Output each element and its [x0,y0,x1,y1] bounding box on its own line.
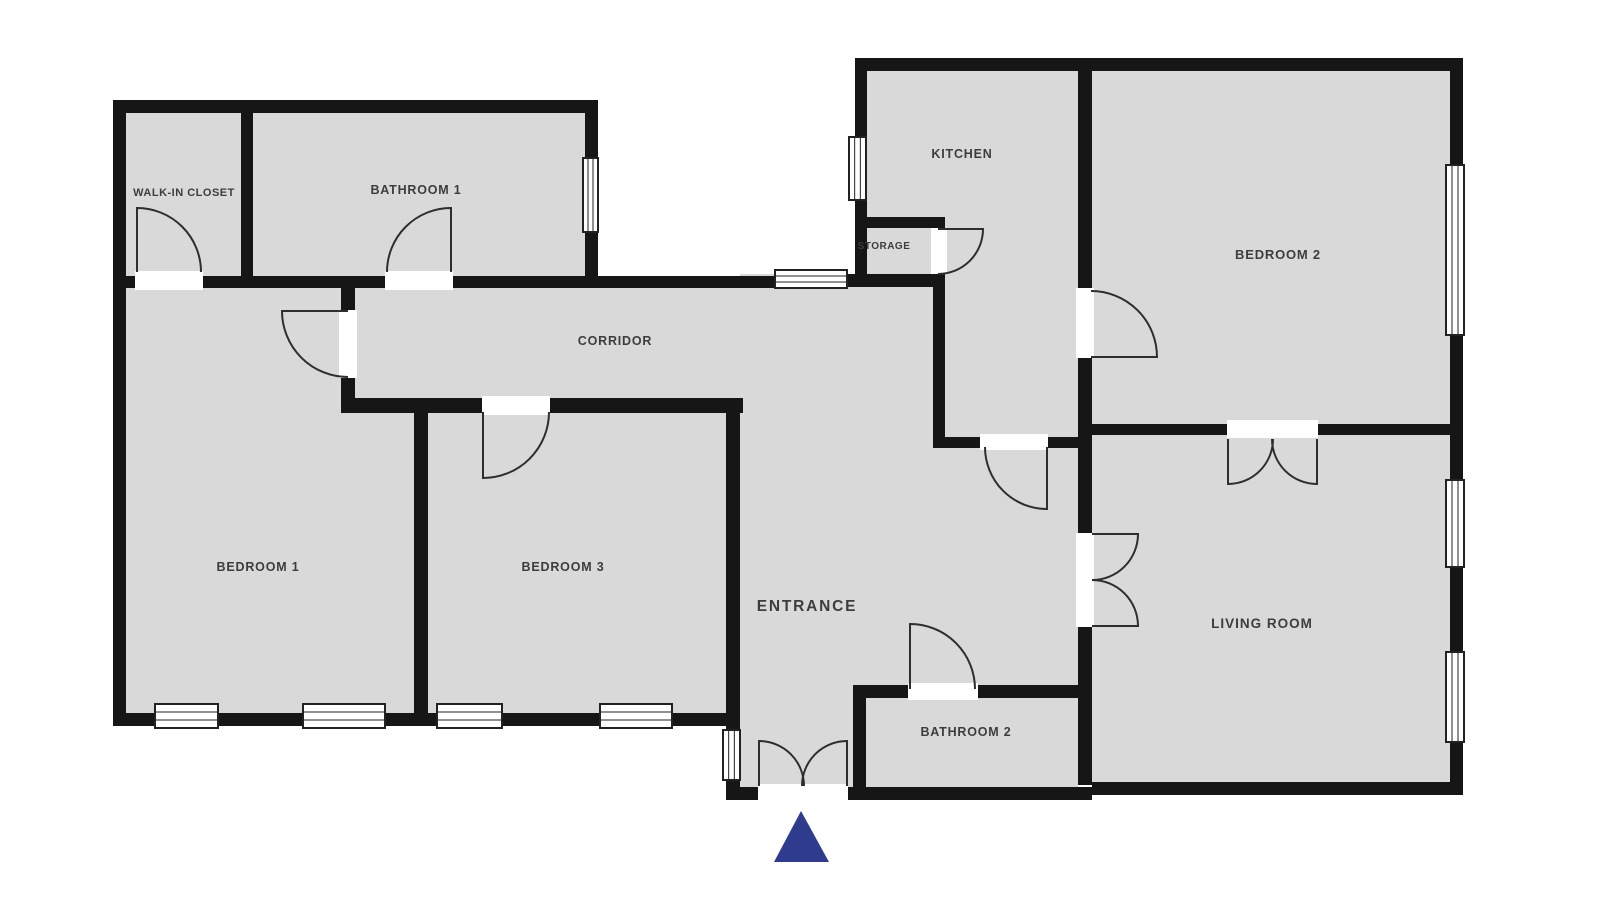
bathroom1-door-gap [385,271,453,290]
wall-segment [726,787,758,800]
kitchen-door-gap [980,434,1048,450]
bedroom1-window-2-icon [303,704,385,728]
wall-segment [113,100,598,113]
corridor-window-icon [775,270,847,288]
room-label-walk-in-closet: WALK-IN CLOSET [133,187,235,199]
bedroom2-door-gap [1076,288,1094,358]
floor-plan-page: WALK-IN CLOSETBATHROOM 1KITCHENSTORAGEBE… [0,0,1600,900]
bedroom2-window-icon [1446,165,1464,335]
wall-segment [414,413,428,713]
entrance-direction-icon [774,811,829,862]
room-label-bedroom-2: BEDROOM 2 [1235,247,1321,262]
floor-plan-svg: WALK-IN CLOSETBATHROOM 1KITCHENSTORAGEBE… [0,0,1600,900]
wall-segment [853,685,866,800]
room-label-corridor: CORRIDOR [578,334,652,348]
entrance-door-gap [758,784,848,801]
wall-segment [1078,71,1092,785]
bathroom2-door-gap [908,683,978,700]
living-door-gap [1076,533,1094,627]
bedroom3-window-1-icon [437,704,502,728]
wall-segment [113,100,126,726]
kitchen-window-icon [849,137,866,200]
entrance-window-icon [723,730,740,780]
room-label-bathroom-2: BATHROOM 2 [920,725,1011,739]
room-label-bathroom-1: BATHROOM 1 [370,183,461,197]
wall-segment [855,58,1463,71]
room-label-bedroom-1: BEDROOM 1 [217,560,300,574]
bedroom2-living-door-gap [1227,420,1318,438]
room-label-storage: STORAGE [858,241,911,252]
wall-segment [867,217,942,228]
closet-door-gap [135,271,203,290]
bedroom1-door-gap [339,310,357,378]
room-label-living-room: LIVING ROOM [1211,616,1313,631]
bathroom1-window-icon [583,158,598,232]
storage-door-gap [931,228,947,274]
room-label-bedroom-3: BEDROOM 3 [522,560,605,574]
bedroom1-window-1-icon [155,704,218,728]
room-label-kitchen: KITCHEN [931,147,992,161]
wall-segment [848,787,1092,800]
wall-segment [241,113,253,277]
living-room-window-1-icon [1446,480,1464,567]
entrance-marker [774,811,829,862]
bedroom3-window-2-icon [600,704,672,728]
room-label-entrance: ENTRANCE [757,598,858,615]
living-room-window-2-icon [1446,652,1464,742]
wall-segment [1092,782,1463,795]
bedroom3-door-gap [482,396,550,415]
